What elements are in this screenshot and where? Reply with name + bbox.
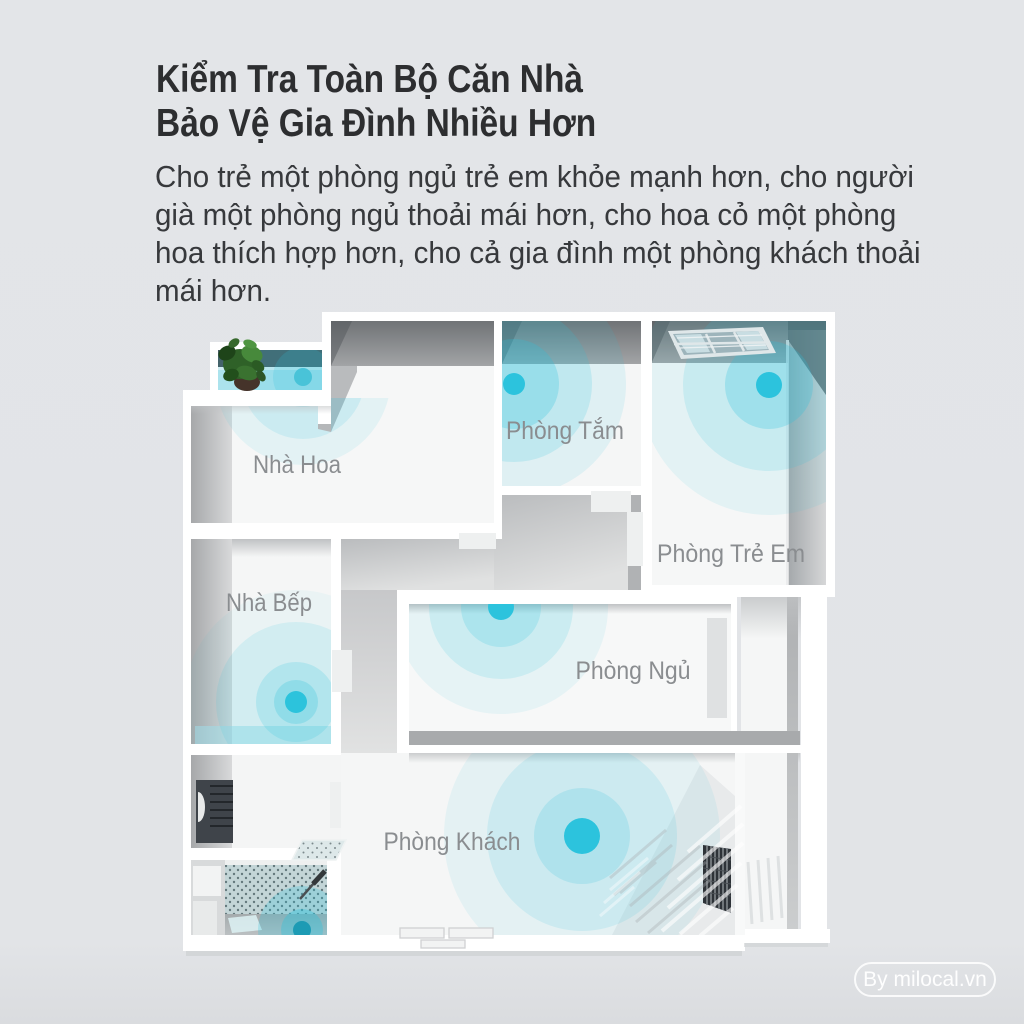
svg-text:Nhà Hoa: Nhà Hoa bbox=[253, 451, 341, 479]
svg-text:Phòng Ngủ: Phòng Ngủ bbox=[576, 657, 691, 685]
svg-text:Nhà Bếp: Nhà Bếp bbox=[226, 589, 312, 617]
svg-text:Phòng Tắm: Phòng Tắm bbox=[506, 416, 624, 445]
svg-text:Phòng Khách: Phòng Khách bbox=[384, 828, 521, 856]
svg-text:Phòng Trẻ Em: Phòng Trẻ Em bbox=[657, 540, 805, 568]
